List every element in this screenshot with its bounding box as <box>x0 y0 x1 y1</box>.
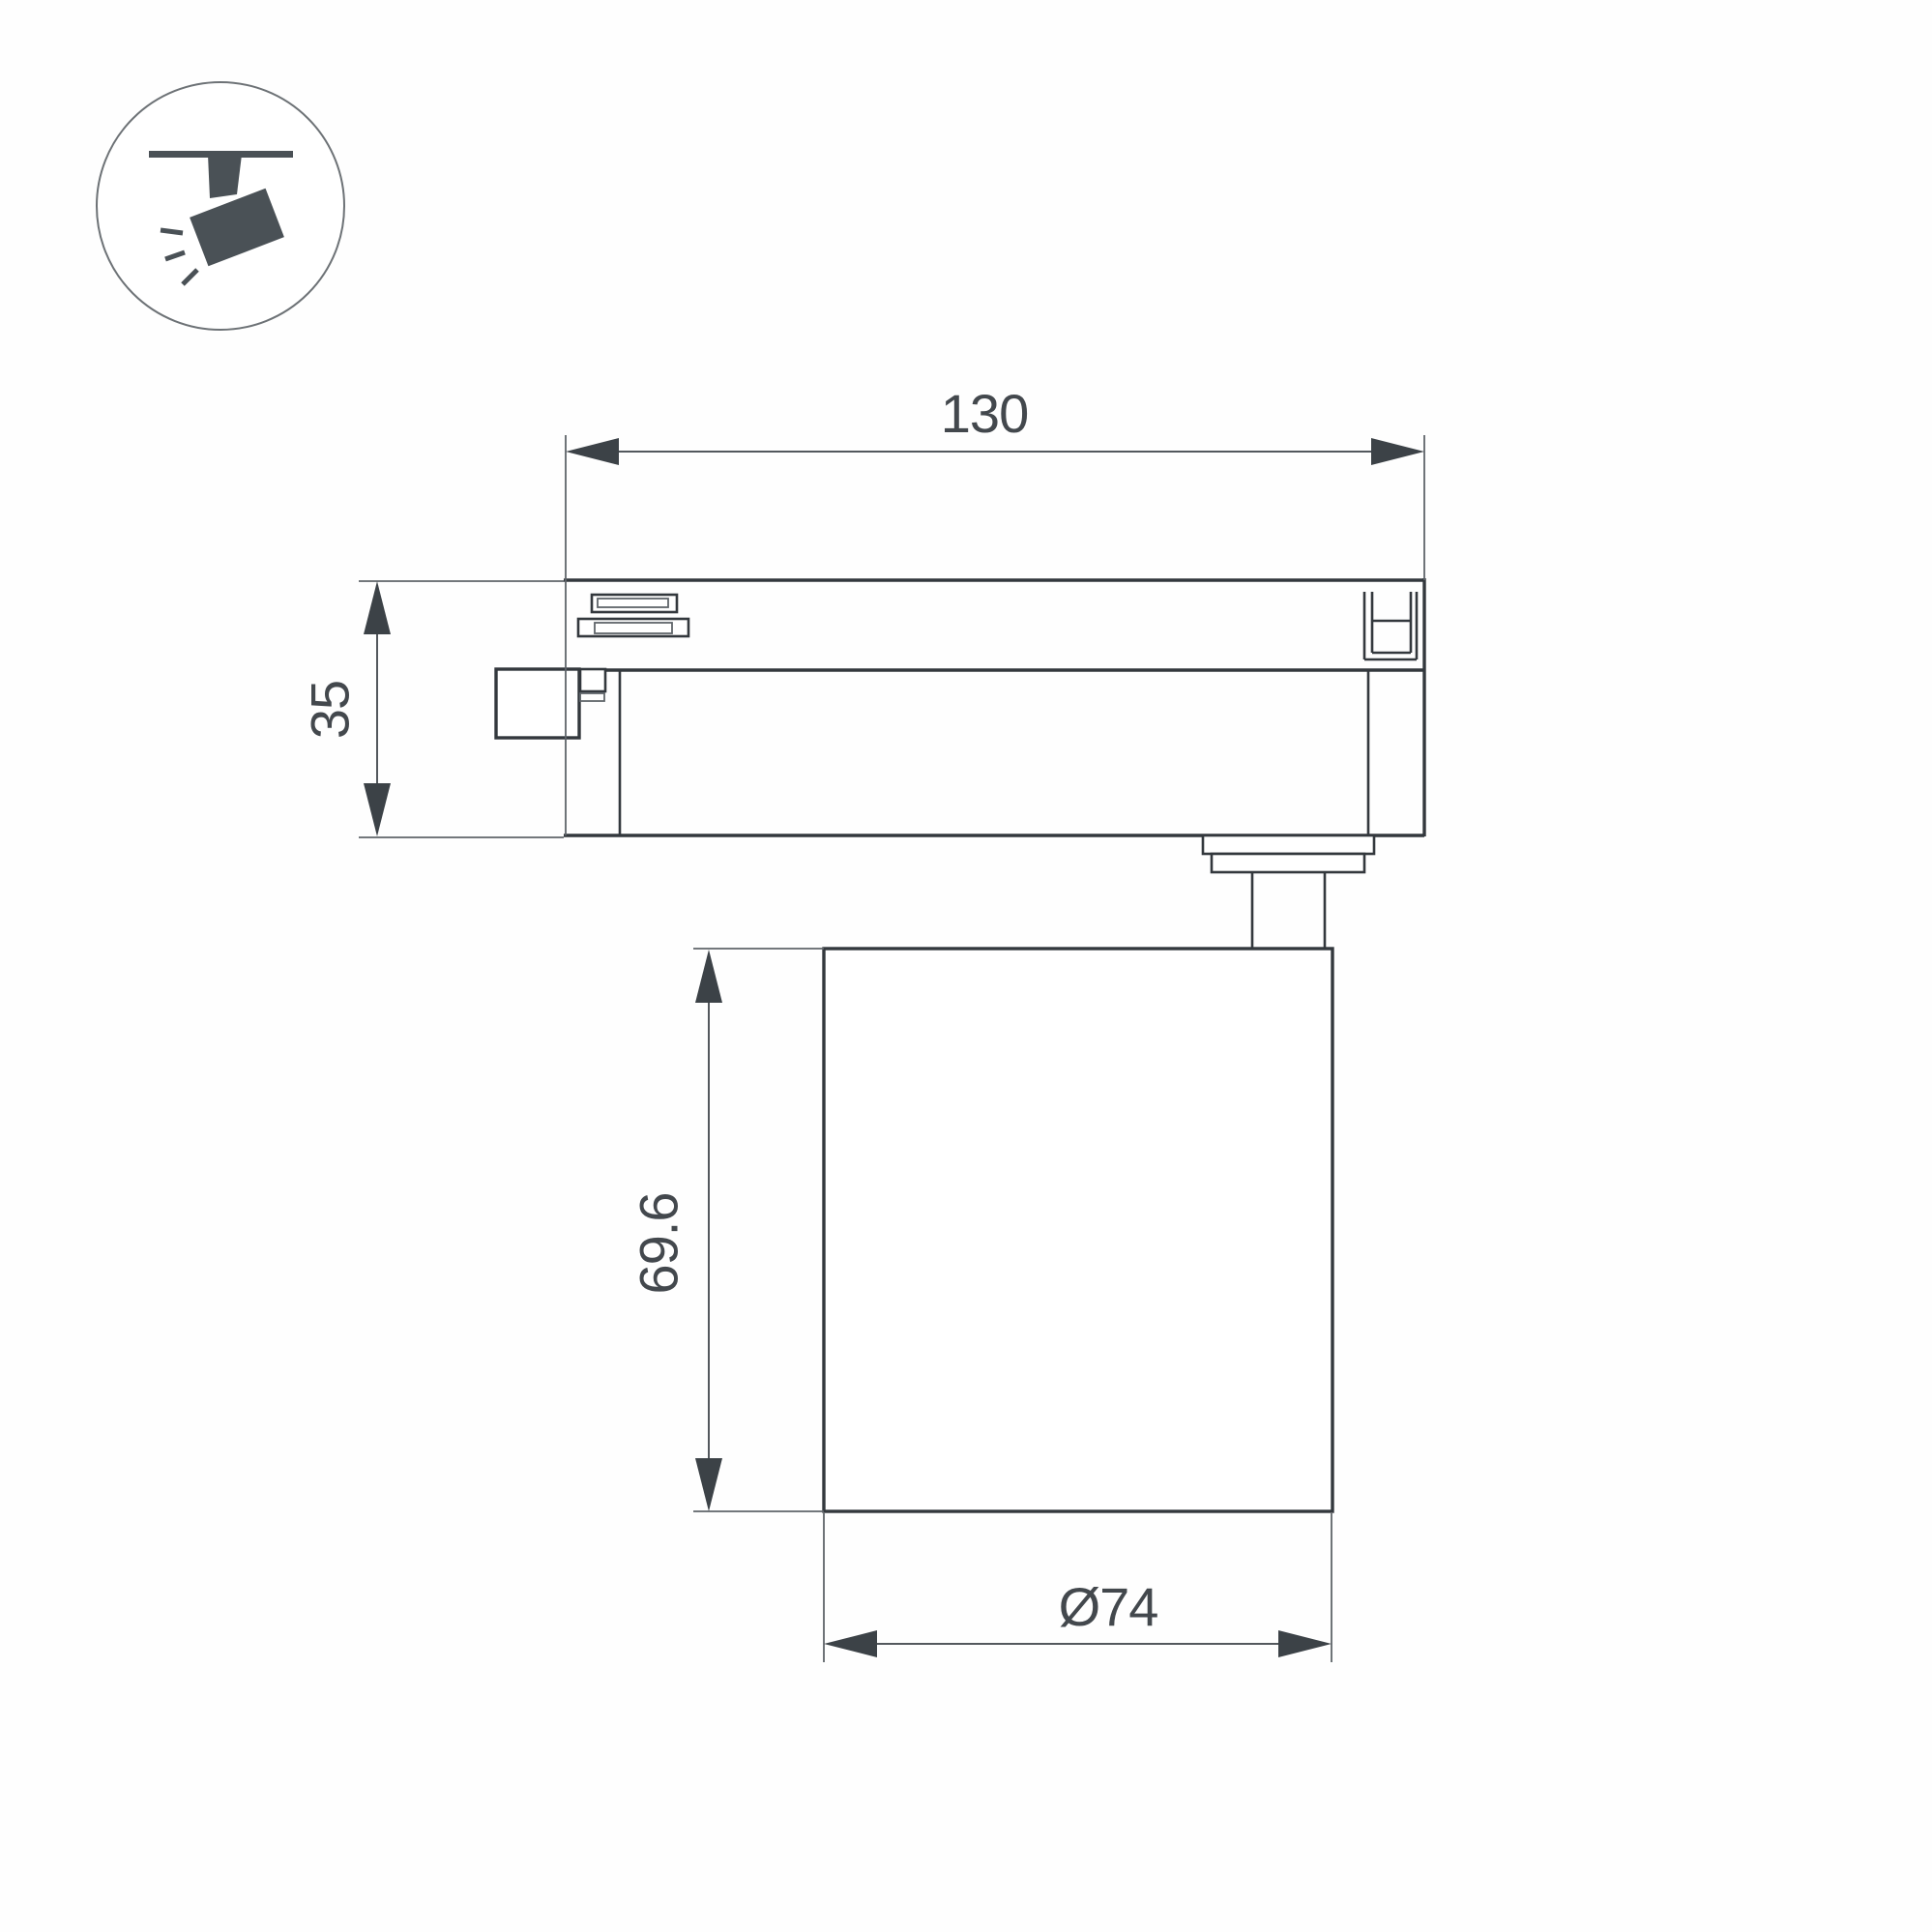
adapter-knob <box>496 669 579 738</box>
track-spotlight-icon <box>97 82 344 330</box>
adapter-latch-bar <box>580 693 604 701</box>
arrow-right <box>1278 1630 1332 1657</box>
arrow-up <box>695 950 722 1003</box>
track-adapter-outline <box>496 578 1424 949</box>
dimension-label: 69.6 <box>629 1193 689 1295</box>
track-light-dimension-drawing: 130 35 69.6 Ø74 <box>0 0 1932 1932</box>
arrow-left <box>824 1630 877 1657</box>
icon-light-ray <box>161 230 183 233</box>
pivot-flange-lower <box>1212 854 1364 872</box>
adapter-latch-step <box>580 669 605 691</box>
arrow-left <box>566 438 619 465</box>
contact-clip-upper <box>592 595 677 612</box>
arrow-up <box>364 581 391 634</box>
icon-mount-stem <box>208 155 242 198</box>
lamp-body-outline <box>824 949 1332 1511</box>
dimension-diameter-74: Ø74 <box>824 1513 1332 1662</box>
adapter-bracket <box>1364 592 1417 659</box>
dimension-height-69-6: 69.6 <box>629 949 824 1511</box>
arrow-down <box>364 783 391 836</box>
dimension-label: 35 <box>300 681 361 739</box>
arrow-right <box>1371 438 1424 465</box>
technical-drawing-page: 130 35 69.6 Ø74 <box>0 0 1932 1932</box>
dimension-label: 130 <box>941 383 1028 444</box>
dimension-width-130: 130 <box>566 383 1424 835</box>
pivot-flange-upper <box>1203 835 1374 854</box>
arrow-down <box>695 1458 722 1511</box>
dimension-label: Ø74 <box>1059 1576 1158 1637</box>
